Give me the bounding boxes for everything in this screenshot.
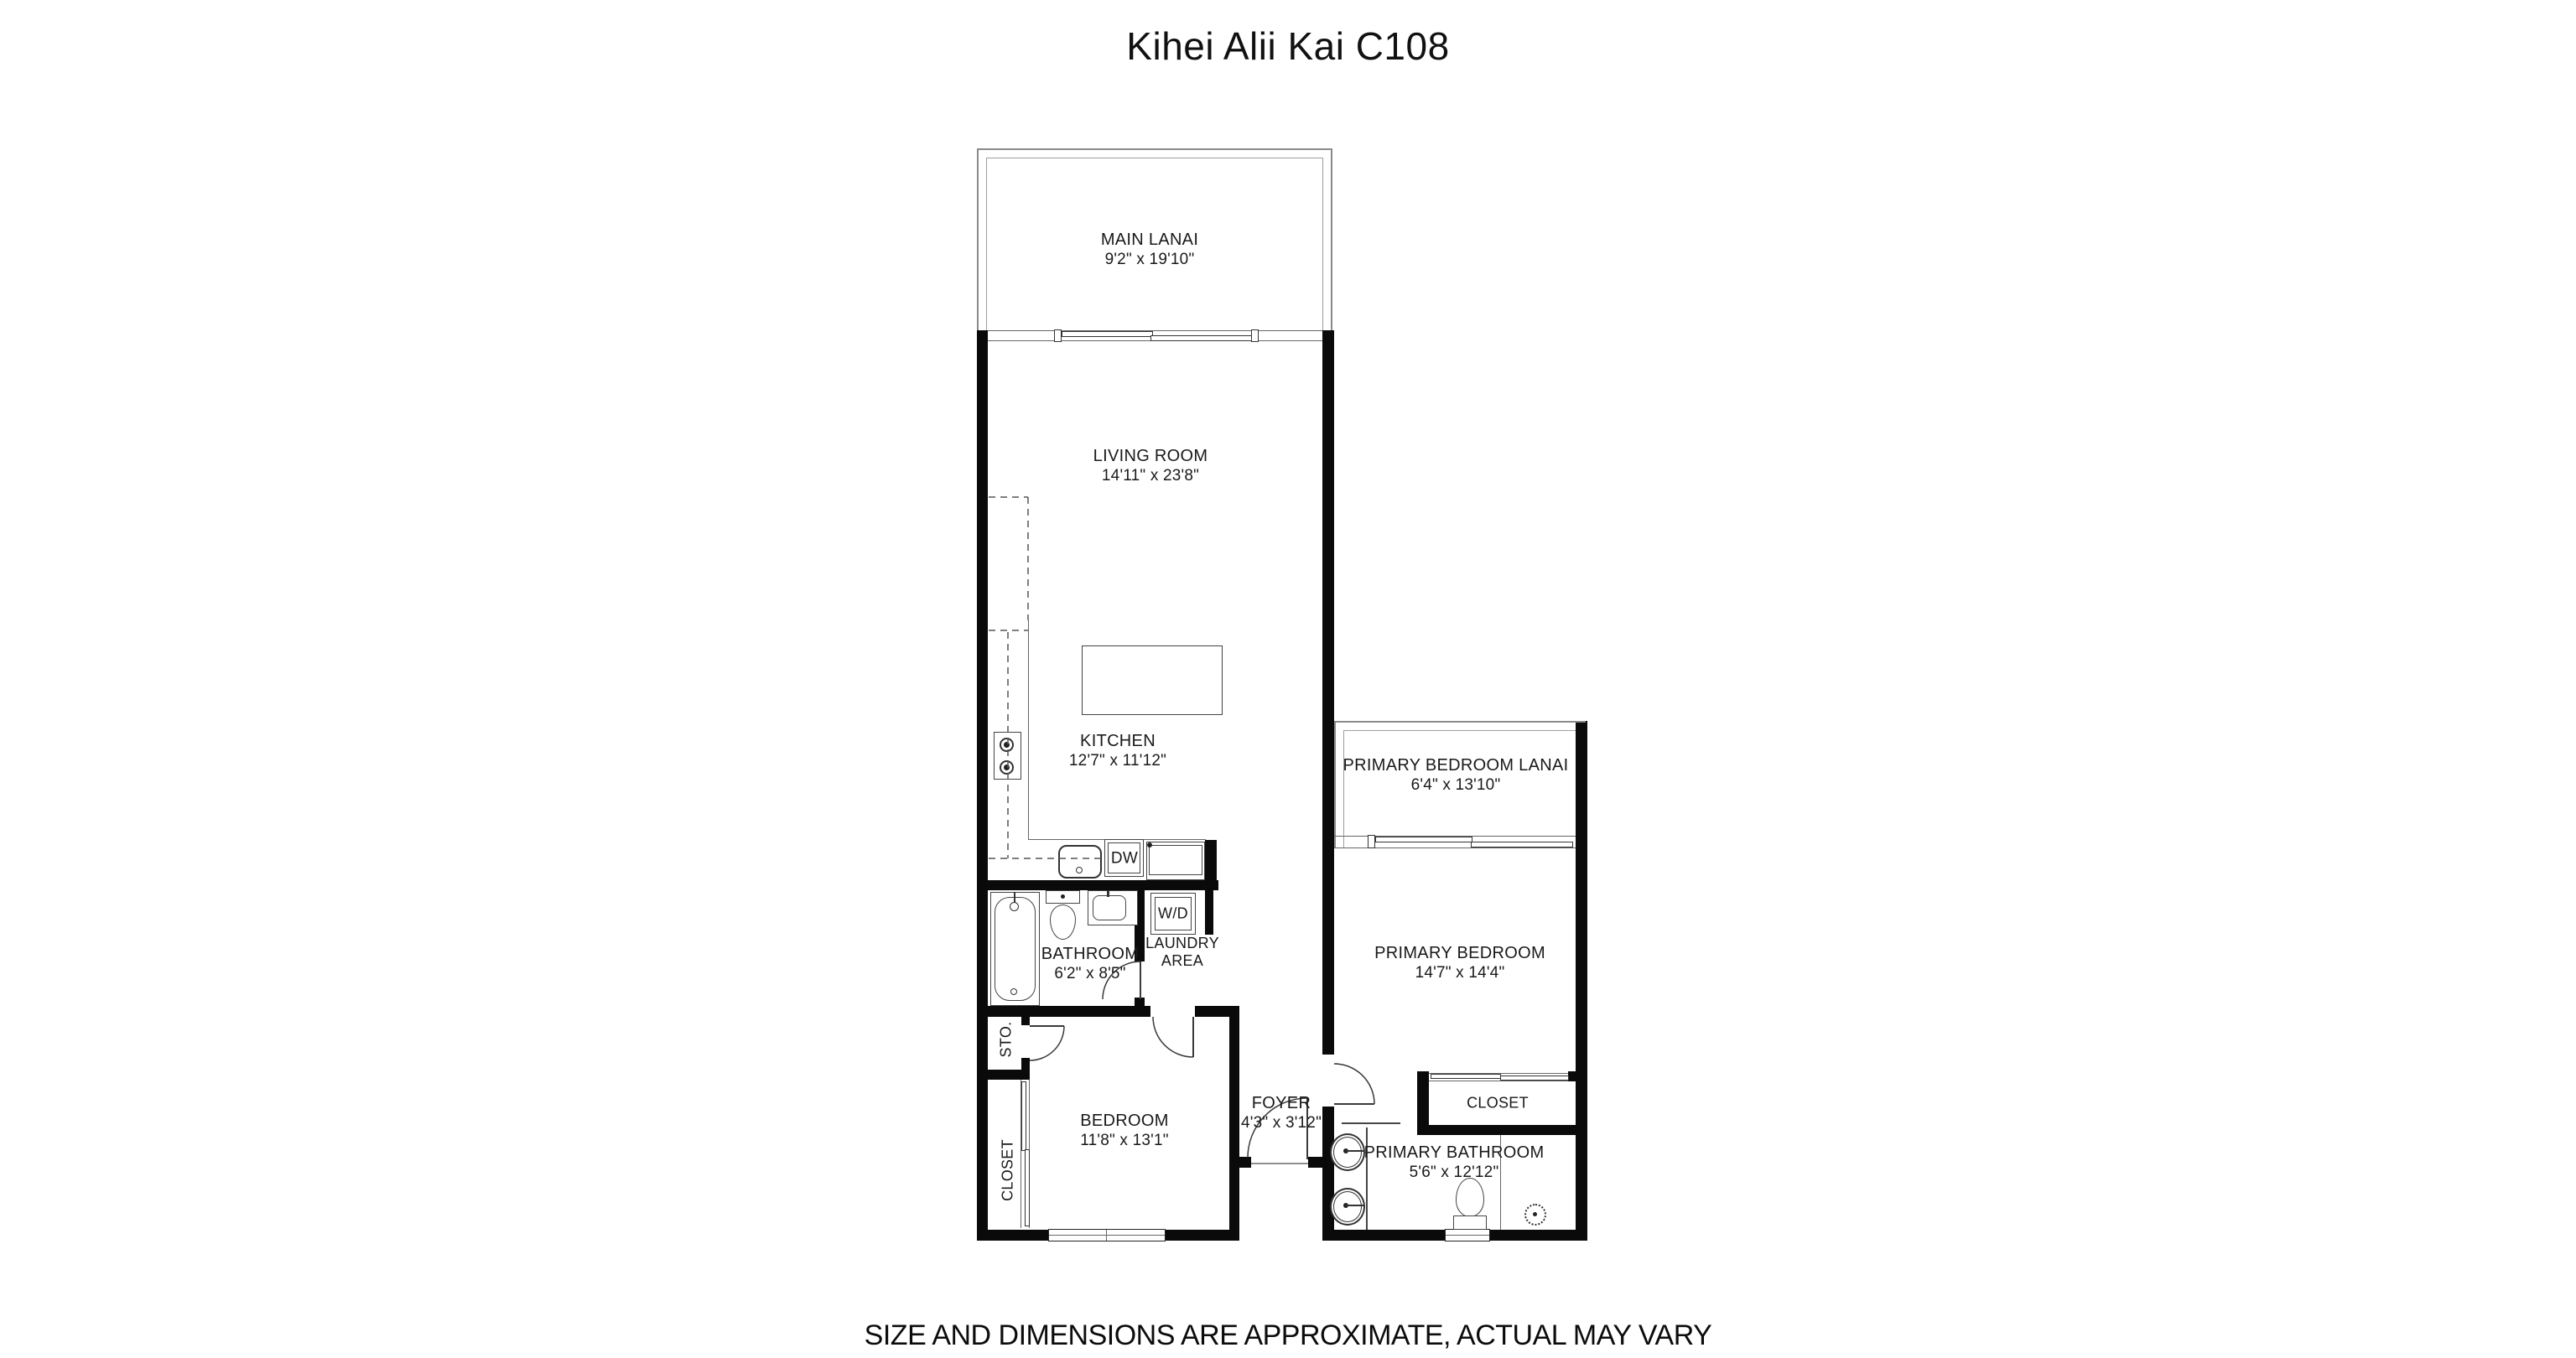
room-name: FOYER <box>1241 1094 1322 1113</box>
tub-faucet-handle <box>1010 902 1019 911</box>
room-label-kitchen: KITCHEN 12'7" x 11'12" <box>1069 732 1166 770</box>
wall-laundry-right <box>1205 890 1213 935</box>
primary-closet-sliding-panel <box>1500 1076 1569 1081</box>
sliding-door-jamb <box>1368 835 1375 848</box>
appliance-text: DW <box>1111 849 1138 868</box>
stove-burner-center <box>1004 765 1010 770</box>
toilet-bowl <box>1456 1178 1484 1217</box>
entry-door-sill <box>1251 1163 1308 1164</box>
room-label-living-room: LIVING ROOM 14'11" x 23'8" <box>1093 447 1208 485</box>
wall-exterior-left <box>977 330 988 1241</box>
room-label-main-lanai: MAIN LANAI 9'2" x 19'10" <box>1101 231 1198 269</box>
refrigerator-handle <box>1147 842 1152 847</box>
wall-storage-right-stub <box>1021 1017 1030 1025</box>
toilet-bowl <box>1050 904 1076 940</box>
closet-door-track <box>1429 1081 1568 1081</box>
window-mullion <box>1446 1235 1489 1236</box>
sliding-door-track <box>988 330 1323 331</box>
wall-fridge-right <box>1205 840 1217 890</box>
sink-faucet <box>1346 1205 1364 1206</box>
towel-bar <box>1342 1122 1400 1124</box>
room-name: MAIN LANAI <box>1101 231 1198 250</box>
room-dims: 9'2" x 19'10" <box>1101 250 1198 269</box>
wall-bedroom-top-left <box>977 1006 1150 1017</box>
primary-bathroom-window <box>1445 1229 1490 1241</box>
room-label-primary-bedroom: PRIMARY BEDROOM 14'7" x 14'4" <box>1374 944 1545 982</box>
disclaimer-text: SIZE AND DIMENSIONS ARE APPROXIMATE, ACT… <box>0 1319 2576 1352</box>
wall-bedroom-bottom-left <box>977 1230 1048 1241</box>
primary-closet-sliding-panel <box>1431 1074 1501 1079</box>
bathroom-sink <box>1093 895 1126 920</box>
toilet-tank <box>1453 1215 1487 1230</box>
wall-tower-right-lower <box>1322 1107 1334 1241</box>
wall-bedroom-right <box>1229 1017 1239 1241</box>
room-dims: 6'4" x 13'10" <box>1343 775 1569 795</box>
room-name: CLOSET <box>999 1139 1018 1201</box>
wall-primary-bath-bottom-left <box>1322 1230 1445 1241</box>
bedroom-closet-sliding-panel <box>1021 1081 1026 1151</box>
room-name: CLOSET <box>1467 1094 1529 1113</box>
toilet-button <box>1061 894 1065 899</box>
appliance-text: W/D <box>1158 904 1188 924</box>
room-label-foyer: FOYER 4'3" x 3'12" <box>1241 1094 1322 1133</box>
room-label-bathroom: BATHROOM 6'2" x 8'5" <box>1041 945 1139 983</box>
stove-burner-center <box>1004 742 1010 748</box>
room-dims: 14'7" x 14'4" <box>1374 963 1545 982</box>
dishwasher-label: DW <box>1111 849 1138 868</box>
main-lanai-sliding-door-panel <box>1150 335 1252 341</box>
shower-drain-center <box>1533 1212 1537 1216</box>
window-mullion <box>1049 1235 1165 1236</box>
wall-kitchen-bottom <box>977 880 1218 890</box>
sink-faucet <box>1107 890 1109 897</box>
window-divider <box>1106 1230 1107 1241</box>
room-dims: 14'11" x 23'8" <box>1093 466 1208 485</box>
door-arc <box>1334 1064 1374 1104</box>
room-dims: 4'3" x 3'12" <box>1241 1113 1322 1133</box>
floorplan-page: { "title": "Kihei Alii Kai C108", "discl… <box>0 0 2576 1358</box>
room-name: PRIMARY BATHROOM <box>1364 1143 1545 1163</box>
wall-primary-bath-bottom-right <box>1490 1230 1587 1241</box>
sink-drain <box>1076 867 1083 873</box>
room-label-bedroom: BEDROOM 11'8" x 13'1" <box>1080 1112 1168 1150</box>
main-lanai-sliding-door-panel <box>1062 331 1153 337</box>
wall-primary-closet-bottom <box>1417 1125 1587 1135</box>
room-label-laundry-area: LAUNDRY AREA <box>1145 935 1219 970</box>
room-name: BEDROOM <box>1080 1112 1168 1131</box>
room-name: STO. <box>997 1022 1016 1058</box>
sink-faucet <box>1346 1150 1364 1152</box>
wall-tower-right <box>1322 330 1334 1055</box>
primary-lanai-sliding-door-panel <box>1471 842 1573 847</box>
sliding-door-jamb <box>1054 329 1062 342</box>
room-name: BATHROOM <box>1041 945 1139 964</box>
room-name: KITCHEN <box>1069 732 1166 751</box>
kitchen-island <box>1082 645 1223 715</box>
room-dims: 12'7" x 11'12" <box>1069 751 1166 770</box>
door-arc <box>1153 1017 1193 1057</box>
wall-storage-right-stub <box>1021 1058 1030 1070</box>
washer-dryer-label: W/D <box>1158 904 1188 924</box>
room-label-primary-bedroom-lanai: PRIMARY BEDROOM LANAI 6'4" x 13'10" <box>1343 756 1569 795</box>
counter-edge <box>1028 620 1029 840</box>
kitchen-sink <box>1058 845 1102 879</box>
refrigerator-inner <box>1149 845 1202 875</box>
sliding-door-jamb <box>1251 329 1259 342</box>
bedroom-window <box>1048 1229 1166 1241</box>
primary-lanai-sliding-door-panel <box>1375 837 1472 842</box>
room-label-primary-bathroom: PRIMARY BATHROOM 5'6" x 12'12" <box>1364 1143 1545 1182</box>
room-name: PRIMARY BEDROOM LANAI <box>1343 756 1569 775</box>
room-name: AREA <box>1145 952 1219 970</box>
room-label-bedroom-closet: CLOSET <box>999 1139 1018 1201</box>
wall-storage-bottom <box>977 1070 1030 1080</box>
floorplan: MAIN LANAI 9'2" x 19'10" LIVING ROOM 14'… <box>0 0 2576 1358</box>
room-dims: 11'8" x 13'1" <box>1080 1131 1168 1150</box>
wall-foyer-bottom-left <box>1229 1157 1251 1168</box>
wall-bedroom-top-right <box>1195 1006 1239 1017</box>
room-dims: 5'6" x 12'12" <box>1364 1163 1545 1182</box>
wall-primary-closet-right-stub <box>1568 1071 1578 1081</box>
room-name: LAUNDRY <box>1145 935 1219 952</box>
bedroom-closet-sliding-panel <box>1025 1149 1030 1226</box>
bathtub-basin <box>995 897 1036 1001</box>
room-name: LIVING ROOM <box>1093 447 1208 466</box>
room-name: PRIMARY BEDROOM <box>1374 944 1545 963</box>
room-label-storage: STO. <box>997 1022 1016 1058</box>
room-dims: 6'2" x 8'5" <box>1041 964 1139 983</box>
door-arc <box>1030 1026 1064 1060</box>
tub-drain <box>1010 988 1017 995</box>
room-label-primary-closet: CLOSET <box>1467 1094 1529 1113</box>
wall-bedroom-bottom-right <box>1166 1230 1239 1241</box>
